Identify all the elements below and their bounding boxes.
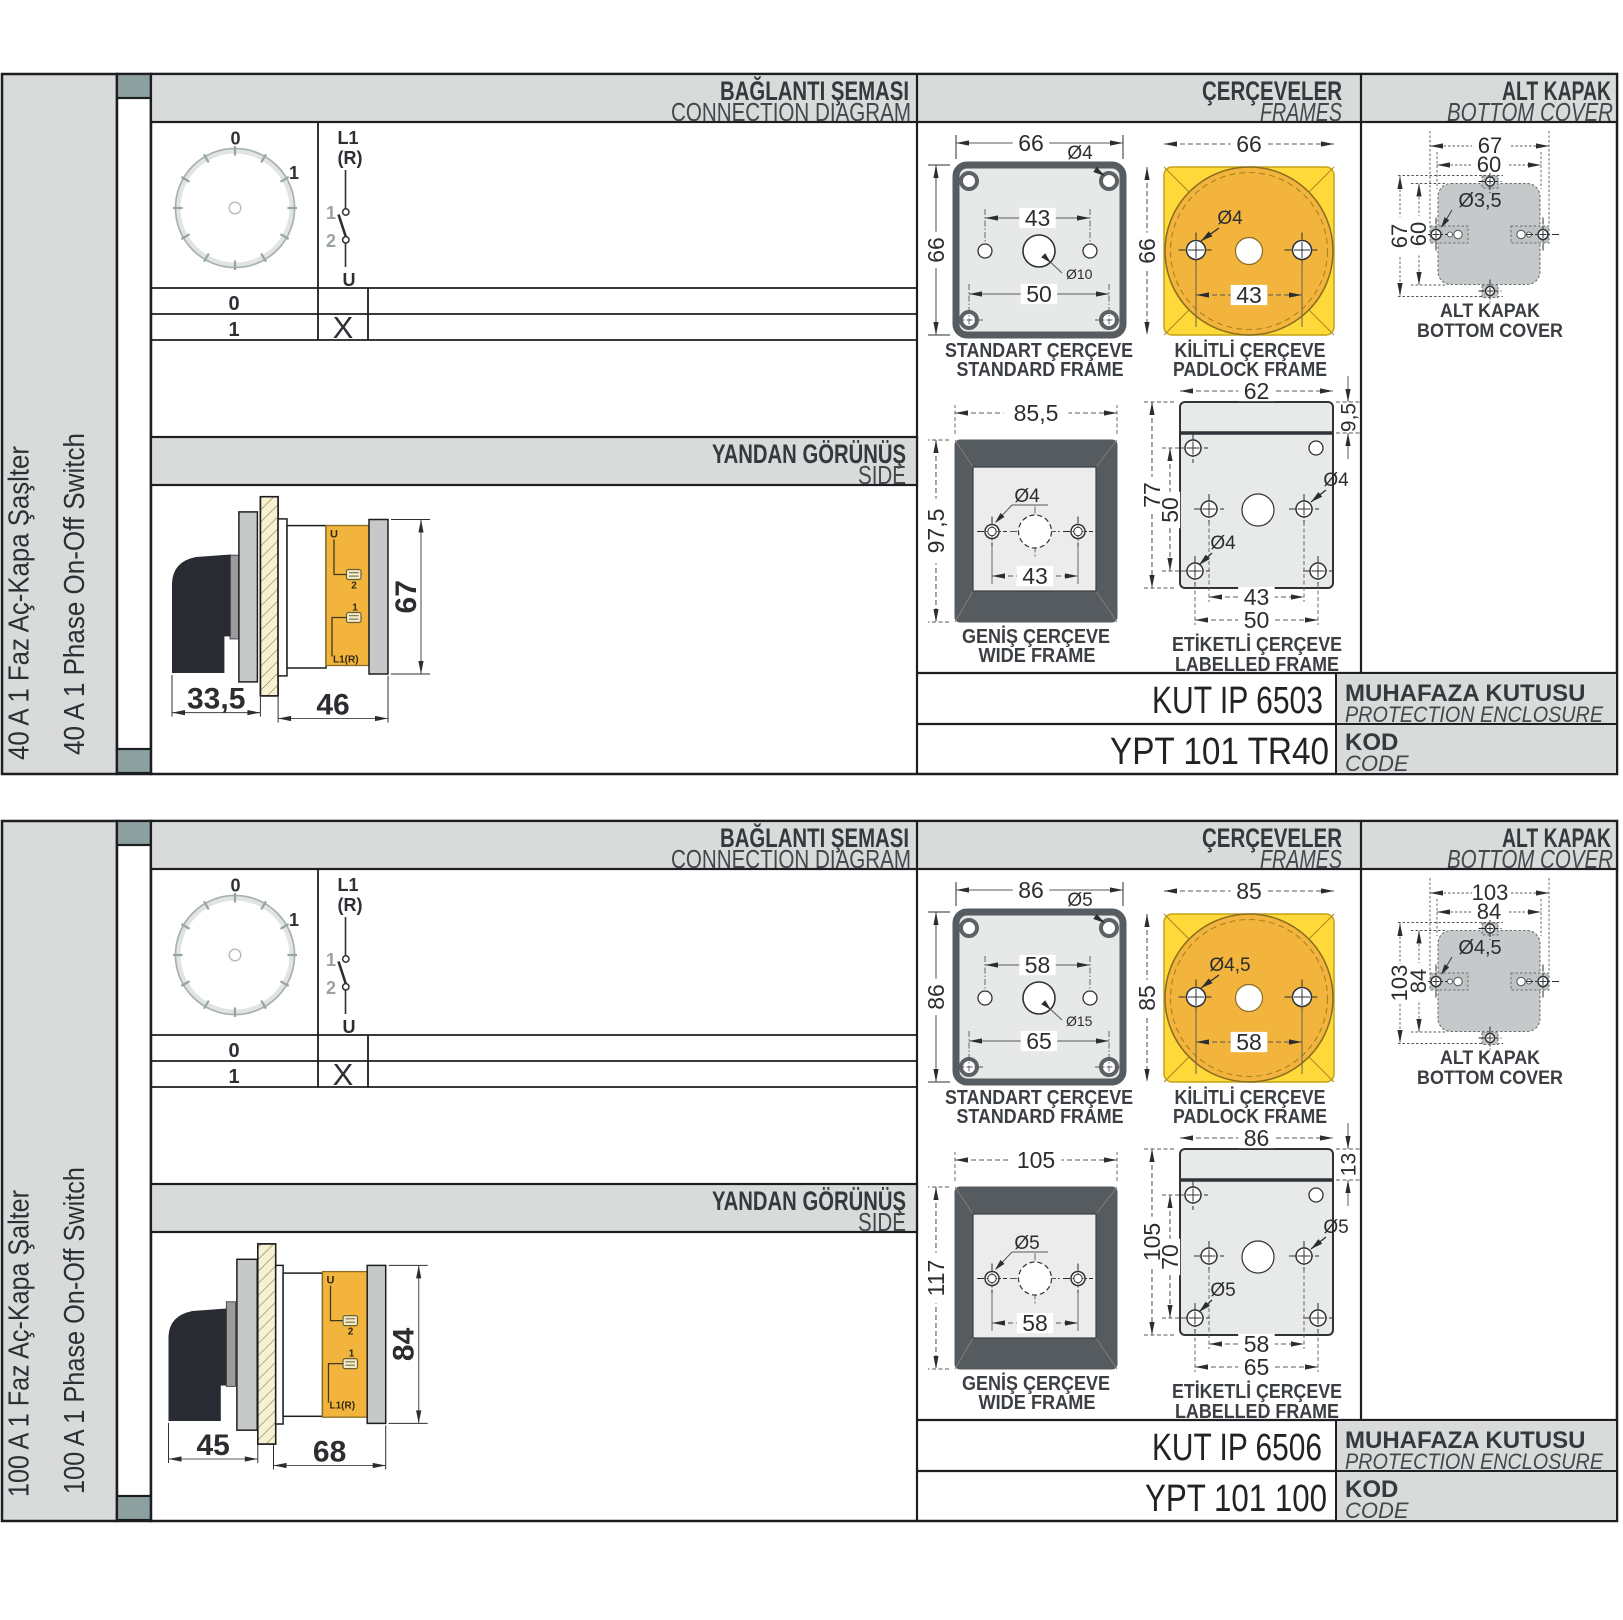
- svg-text:97,5: 97,5: [923, 509, 949, 554]
- svg-text:KUT IP 6506: KUT IP 6506: [1152, 1427, 1322, 1469]
- svg-text:2: 2: [348, 1327, 354, 1338]
- svg-text:117: 117: [923, 1260, 949, 1297]
- svg-text:105: 105: [1017, 1147, 1055, 1173]
- svg-text:40 A 1 Phase On-Off Switch: 40 A 1 Phase On-Off Switch: [59, 433, 91, 755]
- svg-text:1: 1: [326, 950, 336, 970]
- svg-text:9,5: 9,5: [1338, 403, 1361, 432]
- svg-text:43: 43: [1025, 205, 1051, 231]
- svg-text:WIDE FRAME: WIDE FRAME: [979, 1392, 1096, 1414]
- svg-text:60: 60: [1477, 152, 1501, 177]
- svg-text:Ø5: Ø5: [1323, 1217, 1348, 1238]
- svg-text:85,5: 85,5: [1014, 400, 1059, 426]
- svg-text:YPT 101 TR40: YPT 101 TR40: [1110, 731, 1329, 773]
- svg-text:1: 1: [228, 319, 239, 341]
- svg-text:ETİKETLİ ÇERÇEVE: ETİKETLİ ÇERÇEVE: [1172, 633, 1342, 656]
- svg-text:L1: L1: [337, 128, 358, 148]
- svg-text:CONNECTION DIAGRAM: CONNECTION DIAGRAM: [671, 97, 911, 127]
- svg-text:84: 84: [1477, 899, 1501, 924]
- svg-text:U: U: [343, 270, 356, 290]
- svg-text:L1(R): L1(R): [333, 655, 359, 666]
- svg-text:45: 45: [196, 1429, 229, 1462]
- svg-text:X: X: [333, 310, 354, 345]
- svg-text:U: U: [327, 1275, 335, 1287]
- svg-text:Ø5: Ø5: [1014, 1233, 1039, 1254]
- svg-text:68: 68: [313, 1436, 346, 1469]
- svg-text:L1: L1: [337, 875, 358, 895]
- svg-text:Ø5: Ø5: [1067, 890, 1092, 911]
- svg-text:46: 46: [316, 689, 349, 722]
- svg-text:Ø4: Ø4: [1217, 208, 1243, 229]
- svg-text:50: 50: [1157, 497, 1183, 523]
- svg-text:0: 0: [230, 129, 240, 149]
- svg-text:STANDARD FRAME: STANDARD FRAME: [957, 359, 1124, 381]
- svg-text:ETİKETLİ ÇERÇEVE: ETİKETLİ ÇERÇEVE: [1172, 1380, 1342, 1403]
- svg-text:Ø4: Ø4: [1323, 470, 1349, 491]
- svg-text:33,5: 33,5: [187, 683, 245, 716]
- svg-text:85: 85: [1236, 878, 1262, 904]
- svg-text:2: 2: [326, 978, 336, 998]
- svg-text:(R): (R): [338, 895, 363, 915]
- svg-text:WIDE FRAME: WIDE FRAME: [979, 645, 1096, 667]
- svg-text:STANDARD FRAME: STANDARD FRAME: [957, 1106, 1124, 1128]
- svg-text:SIDE: SIDE: [858, 460, 906, 490]
- svg-text:1: 1: [289, 910, 299, 930]
- svg-text:86: 86: [923, 984, 949, 1010]
- svg-text:43: 43: [1236, 282, 1262, 308]
- svg-text:13: 13: [1338, 1153, 1361, 1176]
- svg-text:FRAMES: FRAMES: [1260, 97, 1342, 127]
- svg-text:ALT KAPAK: ALT KAPAK: [1440, 301, 1540, 322]
- svg-text:1: 1: [326, 203, 336, 223]
- svg-text:Ø4,5: Ø4,5: [1458, 937, 1501, 959]
- svg-text:SIDE: SIDE: [858, 1207, 906, 1237]
- svg-text:1: 1: [349, 1349, 355, 1360]
- svg-text:58: 58: [1236, 1029, 1262, 1055]
- svg-text:100 A 1 Phase On-Off Switch: 100 A 1 Phase On-Off Switch: [59, 1167, 91, 1494]
- svg-text:84: 84: [388, 1327, 421, 1361]
- svg-text:(R): (R): [338, 148, 363, 168]
- svg-text:KUT IP 6503: KUT IP 6503: [1152, 680, 1323, 722]
- svg-text:66: 66: [1236, 131, 1262, 157]
- svg-text:43: 43: [1022, 563, 1048, 589]
- svg-text:Ø4,5: Ø4,5: [1209, 955, 1250, 976]
- svg-text:2: 2: [326, 231, 336, 251]
- svg-text:66: 66: [1018, 130, 1044, 156]
- svg-text:67: 67: [390, 580, 423, 613]
- svg-text:Ø4: Ø4: [1067, 143, 1093, 164]
- svg-text:2: 2: [351, 581, 357, 592]
- svg-text:BOTTOM COVER: BOTTOM COVER: [1447, 97, 1613, 127]
- svg-text:1: 1: [352, 603, 358, 614]
- svg-text:Ø10: Ø10: [1066, 266, 1093, 282]
- svg-text:L1(R): L1(R): [330, 1401, 356, 1412]
- svg-text:1: 1: [289, 163, 299, 183]
- svg-text:100 A 1 Faz Aç-Kapa Şalter: 100 A 1 Faz Aç-Kapa Şalter: [4, 1190, 36, 1497]
- svg-text:66: 66: [1134, 238, 1160, 264]
- svg-text:BOTTOM COVER: BOTTOM COVER: [1417, 1068, 1563, 1089]
- svg-text:FRAMES: FRAMES: [1260, 844, 1342, 874]
- svg-text:62: 62: [1244, 378, 1270, 404]
- svg-text:0: 0: [228, 293, 239, 315]
- svg-text:86: 86: [1244, 1125, 1270, 1151]
- svg-text:Ø15: Ø15: [1066, 1013, 1093, 1029]
- svg-text:50: 50: [1026, 281, 1052, 307]
- svg-text:CONNECTION DIAGRAM: CONNECTION DIAGRAM: [671, 844, 911, 874]
- svg-text:Ø4: Ø4: [1210, 533, 1236, 554]
- svg-text:ALT KAPAK: ALT KAPAK: [1440, 1048, 1540, 1069]
- svg-text:Ø4: Ø4: [1014, 486, 1040, 507]
- svg-text:U: U: [343, 1017, 356, 1037]
- svg-text:65: 65: [1026, 1028, 1052, 1054]
- svg-text:X: X: [333, 1057, 354, 1092]
- svg-text:40 A 1 Faz Aç-Kapa Şaşlter: 40 A 1 Faz Aç-Kapa Şaşlter: [4, 446, 36, 760]
- svg-text:YPT 101 100: YPT 101 100: [1145, 1478, 1327, 1520]
- svg-text:U: U: [330, 529, 338, 541]
- svg-text:BOTTOM COVER: BOTTOM COVER: [1417, 321, 1563, 342]
- svg-text:66: 66: [923, 237, 949, 263]
- svg-text:0: 0: [228, 1040, 239, 1062]
- svg-text:Ø3,5: Ø3,5: [1458, 190, 1501, 212]
- svg-text:70: 70: [1157, 1244, 1183, 1270]
- svg-text:CODE: CODE: [1345, 1498, 1409, 1523]
- svg-text:84: 84: [1406, 969, 1431, 993]
- svg-text:1: 1: [228, 1066, 239, 1088]
- svg-text:58: 58: [1022, 1310, 1048, 1336]
- svg-text:Ø5: Ø5: [1210, 1280, 1235, 1301]
- svg-text:86: 86: [1018, 877, 1044, 903]
- svg-text:85: 85: [1134, 985, 1160, 1011]
- svg-text:58: 58: [1025, 952, 1051, 978]
- svg-text:60: 60: [1406, 222, 1431, 246]
- svg-text:65: 65: [1244, 1354, 1270, 1380]
- svg-text:CODE: CODE: [1345, 751, 1409, 776]
- svg-text:BOTTOM COVER: BOTTOM COVER: [1447, 844, 1613, 874]
- svg-text:50: 50: [1244, 607, 1270, 633]
- svg-text:0: 0: [230, 876, 240, 896]
